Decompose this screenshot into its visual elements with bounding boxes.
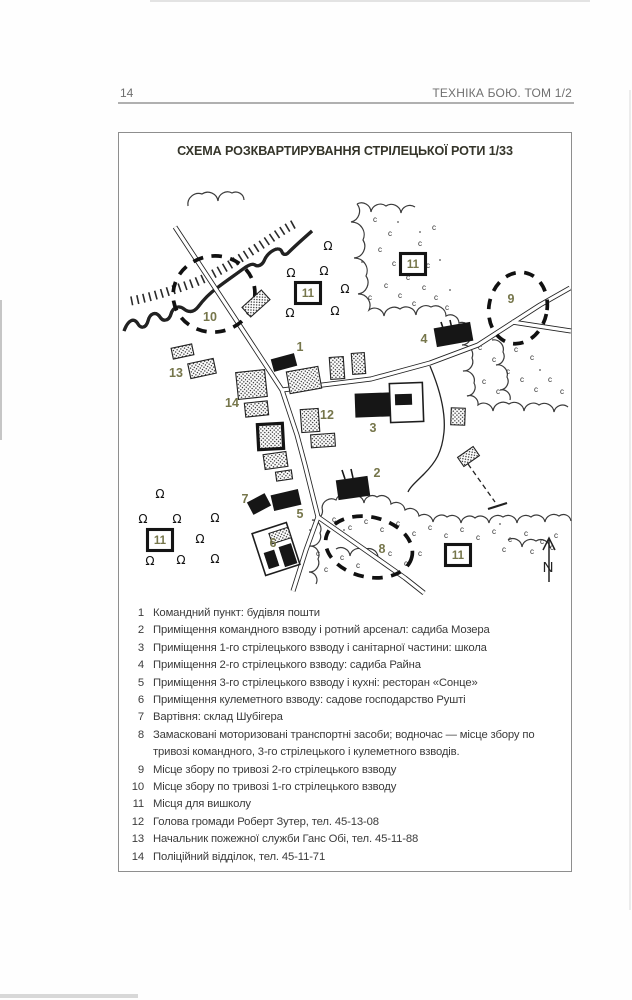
tree-mark: c <box>482 377 486 386</box>
map-number-5: 5 <box>297 507 304 521</box>
legend-item-number: 2 <box>118 622 144 639</box>
legend-item-number: 4 <box>118 657 144 674</box>
legend-item-13: 13Начальник пожежної служби Ганс Обі, те… <box>118 831 566 848</box>
civilian-building <box>236 370 268 400</box>
legend-item-text: Приміщення командного взводу і ротний ар… <box>153 622 566 639</box>
map-number-9: 9 <box>508 292 515 306</box>
tent-symbol: Ω <box>145 554 154 568</box>
tree-mark: c <box>384 281 388 290</box>
civilian-building <box>286 366 321 393</box>
tent-symbol: Ω <box>285 306 294 320</box>
legend-item-number: 5 <box>118 675 144 692</box>
tent-symbol: Ω <box>176 553 185 567</box>
tree-mark: c <box>502 545 506 554</box>
civilian-building <box>451 408 466 425</box>
tree-mark: c <box>388 549 392 558</box>
occupied-building-2 <box>336 476 370 500</box>
tree-mark: c <box>380 525 384 534</box>
map-number-2: 2 <box>374 466 381 480</box>
tree-mark: c <box>364 517 368 526</box>
tent-symbol: Ω <box>286 266 295 280</box>
legend-item-number: 11 <box>118 796 144 813</box>
legend-item-9: 9Місце збору по тривозі 2-го стрілецьког… <box>118 762 566 779</box>
book-page: 14 ТЕХНІКА БОЮ. ТОМ 1/2 СХЕМА РОЗКВАРТИР… <box>0 0 632 1000</box>
tree-mark: c <box>340 553 344 562</box>
firing-point <box>458 447 480 467</box>
firing-range <box>468 464 507 509</box>
legend-item-6: 6Приміщення кулеметного взводу: садове г… <box>118 692 566 709</box>
road-core <box>512 322 571 331</box>
tree-dot <box>499 523 501 525</box>
map-number-12: 12 <box>320 408 334 422</box>
legend-item-3: 3Приміщення 1-го стрілецького взводу і с… <box>118 640 566 657</box>
map-markers: 1234567891012131411111111ΩΩΩΩΩΩΩΩΩΩΩΩΩΩ <box>138 239 514 568</box>
tree-mark: c <box>316 549 320 558</box>
tree-mark: c <box>560 387 564 396</box>
legend-item-text: Приміщення 2-го стрілецького взводу: сад… <box>153 657 566 674</box>
legend-item-text: Місце збору по тривозі 1-го стрілецького… <box>153 779 566 796</box>
map-number-13: 13 <box>169 366 183 380</box>
legend-item-number: 1 <box>118 605 144 622</box>
legend-item-number: 10 <box>118 779 144 796</box>
tree-mark: c <box>388 229 392 238</box>
civilian-building <box>171 344 194 359</box>
civilian-building <box>242 290 270 317</box>
occupied-building-3 <box>355 392 391 417</box>
legend-item-4: 4Приміщення 2-го стрілецького взводу: са… <box>118 657 566 674</box>
legend-item-text: Місця для вишколу <box>153 796 566 813</box>
tree-mark: c <box>508 535 512 544</box>
tree-mark: c <box>540 537 544 546</box>
compass-north-arrow: N <box>543 538 555 582</box>
legend-item-2: 2Приміщення командного взводу і ротний а… <box>118 622 566 639</box>
tent-symbol: Ω <box>330 304 339 318</box>
legend-item-11: 11Місця для вишколу <box>118 796 566 813</box>
legend-item-1: 1Командний пункт: будівля пошти <box>118 605 566 622</box>
civilian-building <box>263 451 288 469</box>
legend-item-text: Голова громади Роберт Зутер, тел. 45-13-… <box>153 814 566 831</box>
tree-mark: c <box>378 245 382 254</box>
tree-mark: c <box>373 215 377 224</box>
tree-mark: c <box>398 291 402 300</box>
legend-item-text: Приміщення кулеметного взводу: садове го… <box>153 692 566 709</box>
tree-mark: c <box>434 293 438 302</box>
tree-mark: c <box>554 531 558 540</box>
tree-mark: c <box>368 293 372 302</box>
tree-mark: c <box>496 387 500 396</box>
river <box>124 231 312 331</box>
legend-item-5: 5Приміщення 3-го стрілецького взводу і к… <box>118 675 566 692</box>
map-number-7: 7 <box>242 492 249 506</box>
tent-symbol: Ω <box>323 239 332 253</box>
occupied-building-3b <box>395 394 412 406</box>
map-legend: 1Командний пункт: будівля пошти2Приміщен… <box>118 605 566 866</box>
tree-dot <box>343 529 345 531</box>
forest-edge <box>322 494 571 523</box>
map-number-10: 10 <box>203 310 217 324</box>
tree-mark: c <box>412 529 416 538</box>
map-number-6: 6 <box>270 536 277 550</box>
training-area-number: 11 <box>407 259 420 271</box>
legend-item-number: 9 <box>118 762 144 779</box>
legend-item-number: 14 <box>118 849 144 866</box>
map-number-1: 1 <box>297 340 304 354</box>
legend-item-7: 7Вартівня: склад Шубігера <box>118 709 566 726</box>
tree-dot <box>449 289 451 291</box>
legend-item-number: 13 <box>118 831 144 848</box>
legend-item-text: Місце збору по тривозі 2-го стрілецького… <box>153 762 566 779</box>
forest-edge <box>357 203 415 213</box>
tree-mark: c <box>422 283 426 292</box>
tree-dot <box>419 231 421 233</box>
legend-item-number: 8 <box>118 727 144 744</box>
legend-item-text: Начальник пожежної служби Ганс Обі, тел.… <box>153 831 566 848</box>
tree-dot <box>539 369 541 371</box>
legend-item-number: 6 <box>118 692 144 709</box>
tree-mark: c <box>324 565 328 574</box>
civilian-building <box>311 433 336 448</box>
tree-mark: c <box>418 239 422 248</box>
tree-mark: c <box>460 525 464 534</box>
tree-mark: c <box>534 385 538 394</box>
tree-mark: c <box>418 549 422 558</box>
training-area-number: 11 <box>452 550 465 562</box>
legend-item-text: Поліційний відділок, тел. 45-11-71 <box>153 849 566 866</box>
tree-mark: c <box>524 529 528 538</box>
tree-mark: c <box>412 299 416 308</box>
tent-symbol: Ω <box>155 487 164 501</box>
map-number-4: 4 <box>421 332 428 346</box>
legend-item-number: 7 <box>118 709 144 726</box>
civilian-building <box>275 470 292 481</box>
tent-symbol: Ω <box>319 264 328 278</box>
road-core <box>318 517 424 593</box>
tree-mark: c <box>356 561 360 570</box>
tree-mark: c <box>392 259 396 268</box>
tree-dot <box>397 221 399 223</box>
tree-mark: c <box>492 355 496 364</box>
legend-item-8: 8Замасковані моторизовані транспортні за… <box>118 727 566 762</box>
tree-mark: c <box>444 531 448 540</box>
map-number-8: 8 <box>379 542 386 556</box>
legend-item-text: Вартівня: склад Шубігера <box>153 709 566 726</box>
civilian-building <box>329 357 345 380</box>
legend-item-14: 14Поліційний відділок, тел. 45-11-71 <box>118 849 566 866</box>
tree-mark: c <box>492 527 496 536</box>
tree-mark: c <box>428 523 432 532</box>
tent-symbol: Ω <box>210 552 219 566</box>
map-number-14: 14 <box>225 396 239 410</box>
legend-item-text: Замасковані моторизовані транспортні зас… <box>153 727 566 762</box>
tree-mark: c <box>530 353 534 362</box>
compass-label: N <box>543 559 554 576</box>
civilian-building-bold <box>257 423 283 449</box>
legend-item-text: Приміщення 1-го стрілецького взводу і са… <box>153 640 566 657</box>
tree-dot <box>361 261 363 263</box>
occupied-building-1 <box>271 353 298 372</box>
assembly-area-10 <box>167 249 261 338</box>
occupied-building-7 <box>247 493 271 515</box>
legend-item-text: Командний пункт: будівля пошти <box>153 605 566 622</box>
civilian-building <box>351 353 365 375</box>
forest-edge <box>188 192 244 206</box>
training-area-number: 11 <box>302 288 315 300</box>
tree-mark: c <box>445 303 449 312</box>
tree-mark: c <box>514 345 518 354</box>
legend-item-text: Приміщення 3-го стрілецького взводу і ку… <box>153 675 566 692</box>
tent-symbol: Ω <box>340 282 349 296</box>
tree-dot <box>439 259 441 261</box>
tent-symbol: Ω <box>210 511 219 525</box>
tree-mark: c <box>506 367 510 376</box>
legend-item-12: 12Голова громади Роберт Зутер, тел. 45-1… <box>118 814 566 831</box>
map-number-3: 3 <box>370 421 377 435</box>
civilian-building <box>300 408 320 432</box>
tent-symbol: Ω <box>138 512 147 526</box>
tree-mark: c <box>548 375 552 384</box>
legend-item-number: 12 <box>118 814 144 831</box>
legend-item-number: 3 <box>118 640 144 657</box>
tree-mark: c <box>348 523 352 532</box>
chimney-marks <box>342 469 353 479</box>
tree-mark: c <box>530 547 534 556</box>
civilian-building <box>244 401 268 417</box>
tent-symbol: Ω <box>195 532 204 546</box>
tree-mark: c <box>520 375 524 384</box>
civilian-building <box>188 358 217 378</box>
tree-mark: c <box>432 223 436 232</box>
tent-symbol: Ω <box>172 512 181 526</box>
tree-mark: c <box>476 533 480 542</box>
legend-item-10: 10Місце збору по тривозі 1-го стрілецько… <box>118 779 566 796</box>
training-area-number: 11 <box>154 535 167 547</box>
